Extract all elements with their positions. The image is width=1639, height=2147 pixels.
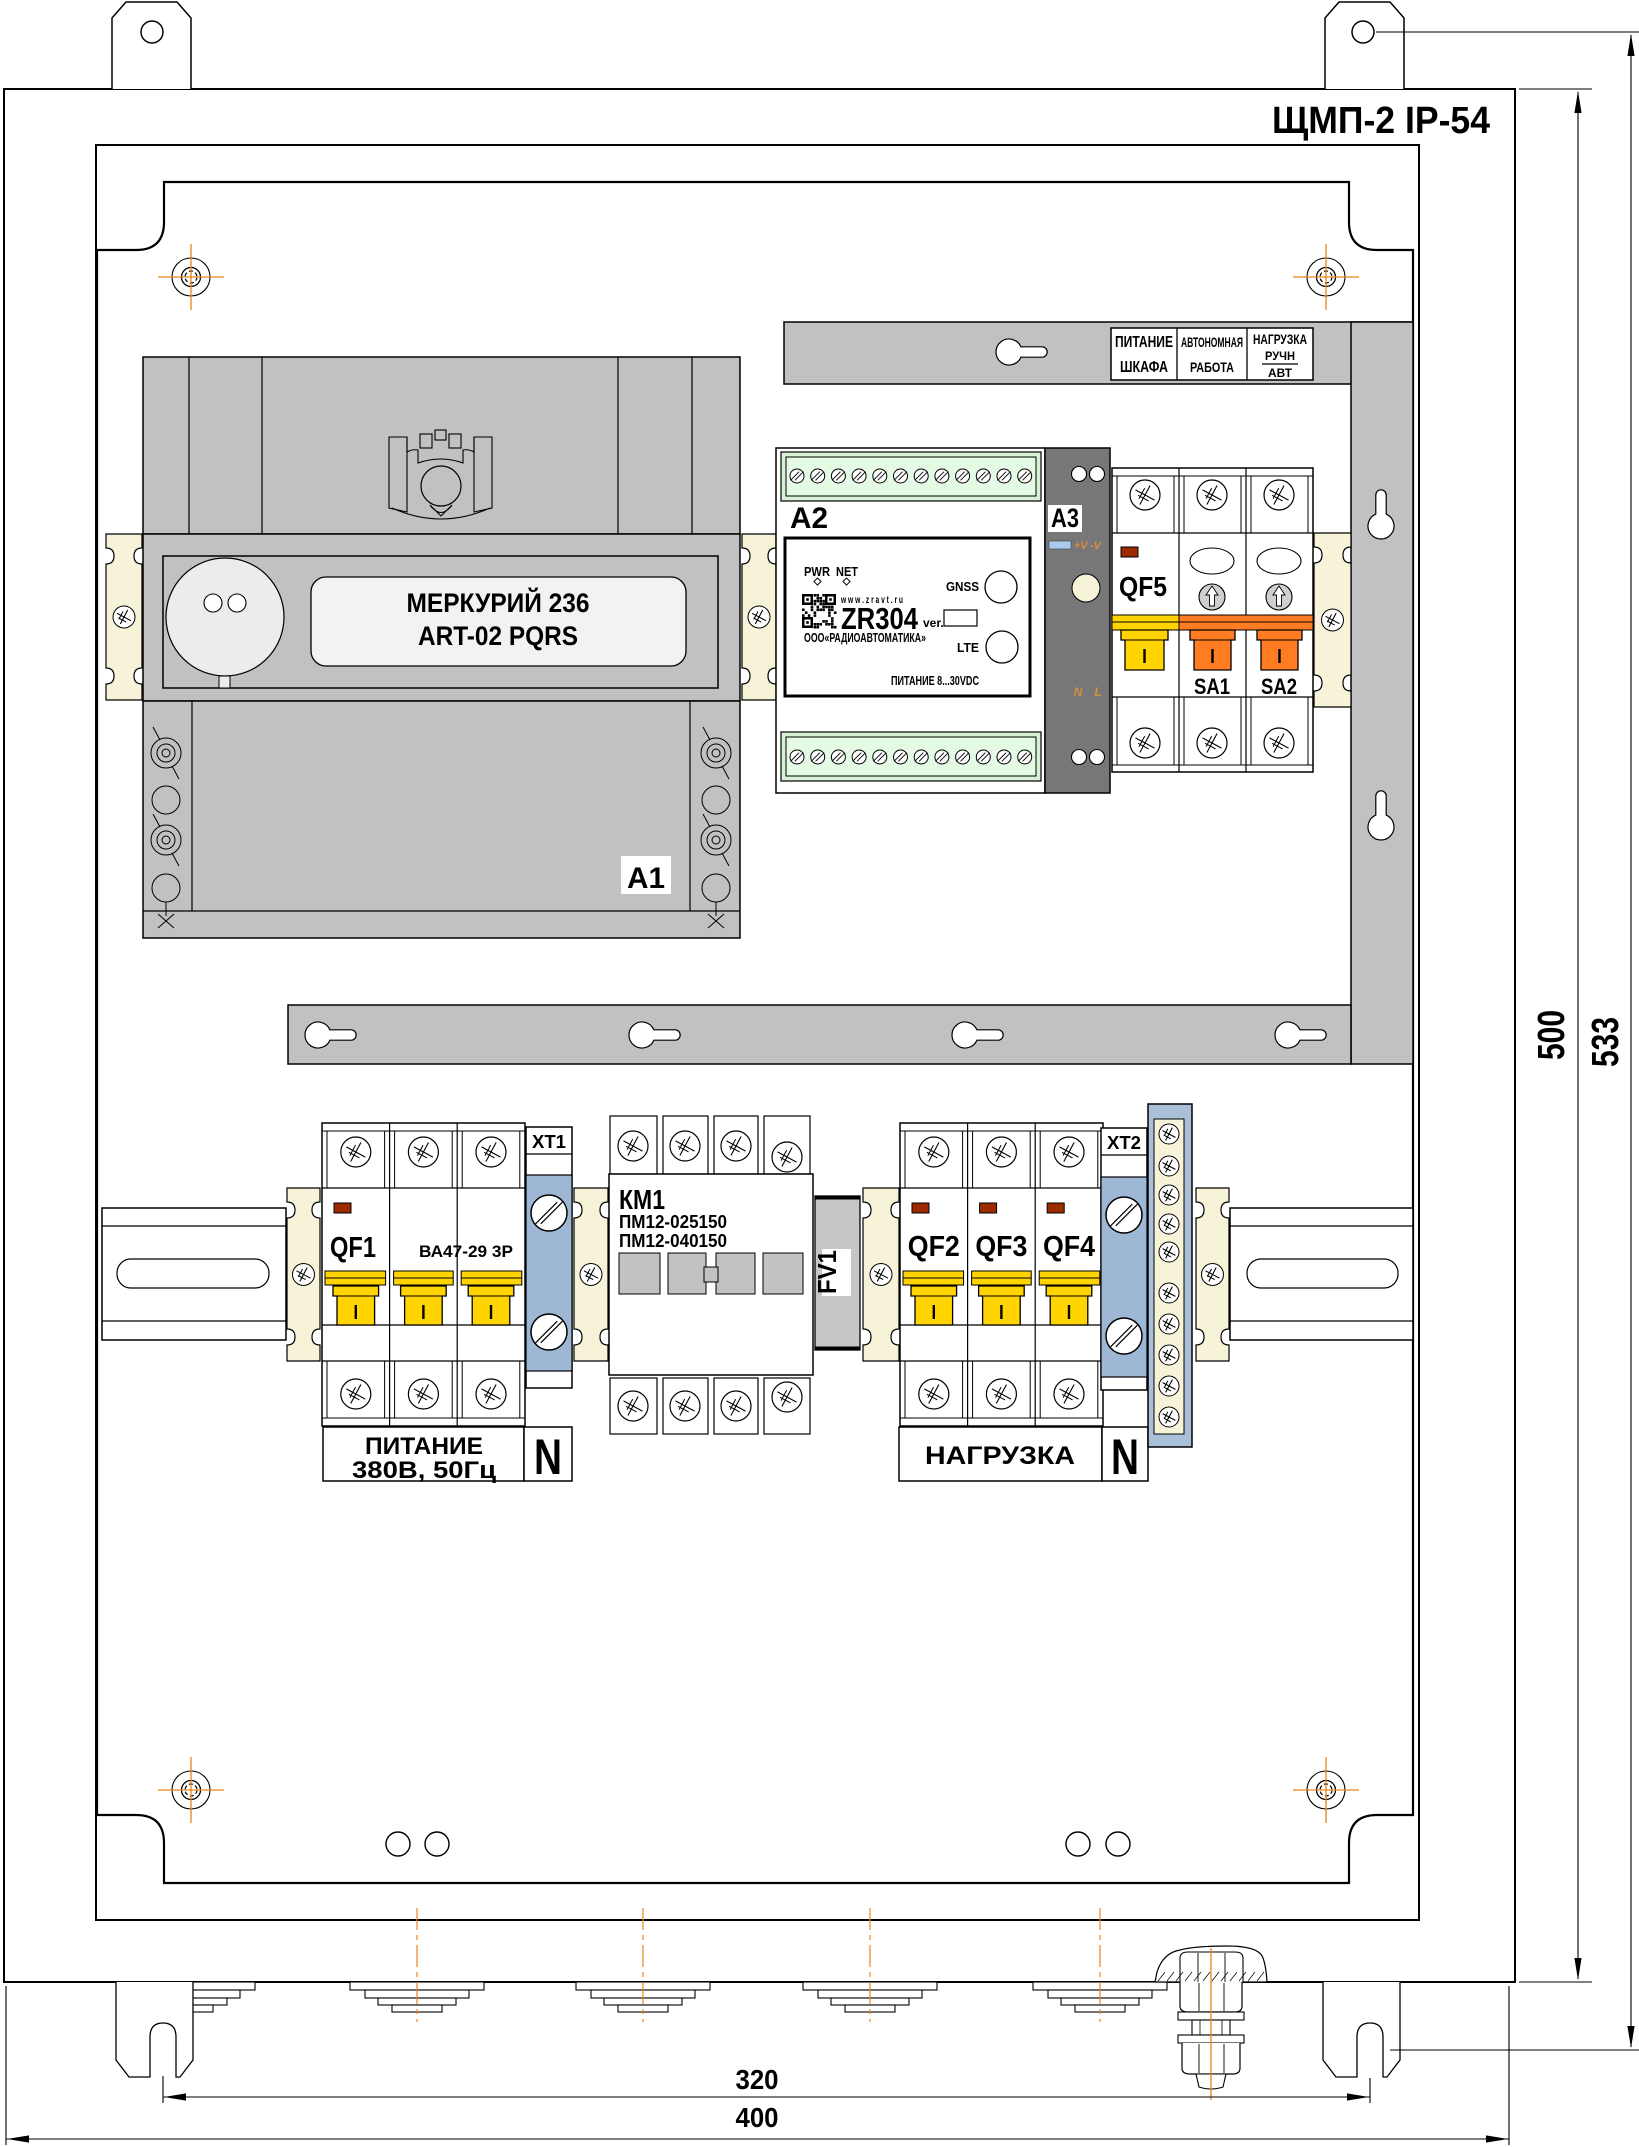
- svg-text:ПМ12-040150: ПМ12-040150: [619, 1231, 727, 1251]
- svg-text:ООО«РАДИОАВТОМАТИКА»: ООО«РАДИОАВТОМАТИКА»: [804, 631, 926, 645]
- svg-text:A2: A2: [790, 502, 828, 535]
- svg-text:НАГРУЗКА: НАГРУЗКА: [1253, 332, 1307, 347]
- svg-text:N: N: [1111, 1429, 1139, 1485]
- svg-text:GNSS: GNSS: [946, 579, 979, 594]
- svg-text:A1: A1: [627, 862, 665, 895]
- svg-text:ШКАФА: ШКАФА: [1120, 359, 1168, 376]
- svg-text:NET: NET: [836, 564, 858, 579]
- svg-text:ART-02 PQRS: ART-02 PQRS: [418, 621, 578, 651]
- svg-text:КМ1: КМ1: [619, 1184, 665, 1215]
- svg-text:QF4: QF4: [1043, 1231, 1095, 1263]
- svg-text:ПИТАНИЕ: ПИТАНИЕ: [1115, 334, 1173, 351]
- svg-text:500: 500: [1531, 1010, 1573, 1060]
- svg-text:QF3: QF3: [975, 1231, 1027, 1263]
- svg-text:-V: -V: [1090, 540, 1103, 552]
- svg-text:N: N: [534, 1429, 562, 1485]
- svg-text:АВТОНОМНАЯ: АВТОНОМНАЯ: [1181, 334, 1243, 350]
- svg-text:ХТ2: ХТ2: [1107, 1133, 1141, 1153]
- svg-text:PWR: PWR: [804, 564, 831, 579]
- svg-text:МЕРКУРИЙ 236: МЕРКУРИЙ 236: [407, 587, 590, 618]
- svg-text:ПИТАНИЕ 8...30VDC: ПИТАНИЕ 8...30VDC: [891, 674, 979, 688]
- svg-text:380В, 50Гц: 380В, 50Гц: [352, 1457, 496, 1484]
- svg-text:ПИТАНИЕ: ПИТАНИЕ: [365, 1433, 483, 1460]
- svg-text:FV1: FV1: [812, 1250, 842, 1294]
- svg-text:L: L: [1094, 685, 1101, 699]
- svg-text:A3: A3: [1051, 503, 1079, 533]
- svg-text:LTE: LTE: [957, 640, 979, 655]
- svg-text:АВТ: АВТ: [1268, 368, 1292, 380]
- svg-text:533: 533: [1585, 1017, 1627, 1067]
- svg-text:400: 400: [736, 2102, 779, 2133]
- svg-text:ХТ1: ХТ1: [532, 1132, 566, 1152]
- svg-text:ПМ12-025150: ПМ12-025150: [619, 1212, 727, 1232]
- svg-text:QF2: QF2: [908, 1231, 960, 1263]
- svg-text:НАГРУЗКА: НАГРУЗКА: [925, 1442, 1075, 1470]
- svg-text:SA2: SA2: [1261, 674, 1297, 699]
- svg-text:QF1: QF1: [330, 1232, 376, 1264]
- svg-text:+V: +V: [1074, 540, 1089, 552]
- svg-text:320: 320: [736, 2064, 779, 2095]
- svg-text:ЩМП-2 IP-54: ЩМП-2 IP-54: [1272, 100, 1490, 142]
- svg-text:QF5: QF5: [1119, 571, 1167, 602]
- svg-text:SA1: SA1: [1194, 674, 1230, 699]
- svg-text:ВА47-29 3Р: ВА47-29 3Р: [419, 1242, 513, 1261]
- svg-text:ver.: ver.: [923, 616, 944, 630]
- svg-text:N: N: [1074, 685, 1083, 699]
- svg-text:РАБОТА: РАБОТА: [1190, 359, 1234, 375]
- svg-text:РУЧН: РУЧН: [1265, 351, 1295, 363]
